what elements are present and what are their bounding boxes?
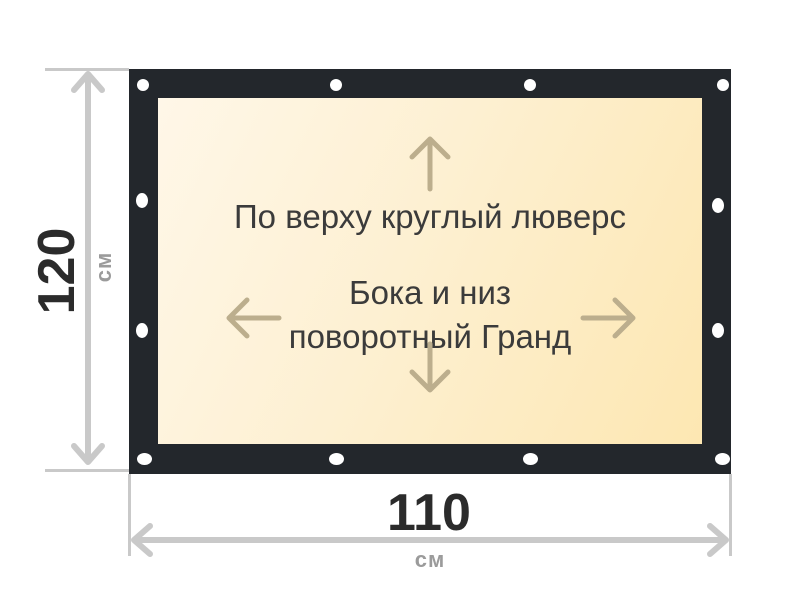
grommet-icon (136, 193, 148, 208)
grommet-icon (712, 198, 724, 213)
grommet-icon (136, 323, 148, 338)
arrow-down-icon (402, 338, 458, 398)
grommet-icon (137, 453, 152, 465)
grommet-icon (524, 79, 536, 91)
grommet-icon (329, 453, 344, 465)
grommet-icon (137, 79, 149, 91)
grommet-icon (717, 79, 729, 91)
arrow-left-icon (221, 294, 285, 342)
width-unit: см (380, 548, 480, 572)
top-edge-note: По верху круглый люверс (158, 195, 702, 239)
arrow-right-icon (577, 294, 641, 342)
grommet-icon (712, 323, 724, 338)
height-unit: см (92, 237, 116, 297)
grommet-icon (330, 79, 342, 91)
height-tick-bottom (45, 469, 129, 472)
banner-dimension-diagram: По верху круглый люверс Бока и низ повор… (0, 0, 800, 600)
height-value: 120 (27, 191, 87, 351)
grommet-icon (715, 453, 730, 465)
width-value: 110 (329, 488, 529, 538)
arrow-up-icon (402, 131, 458, 195)
grommet-icon (523, 453, 538, 465)
